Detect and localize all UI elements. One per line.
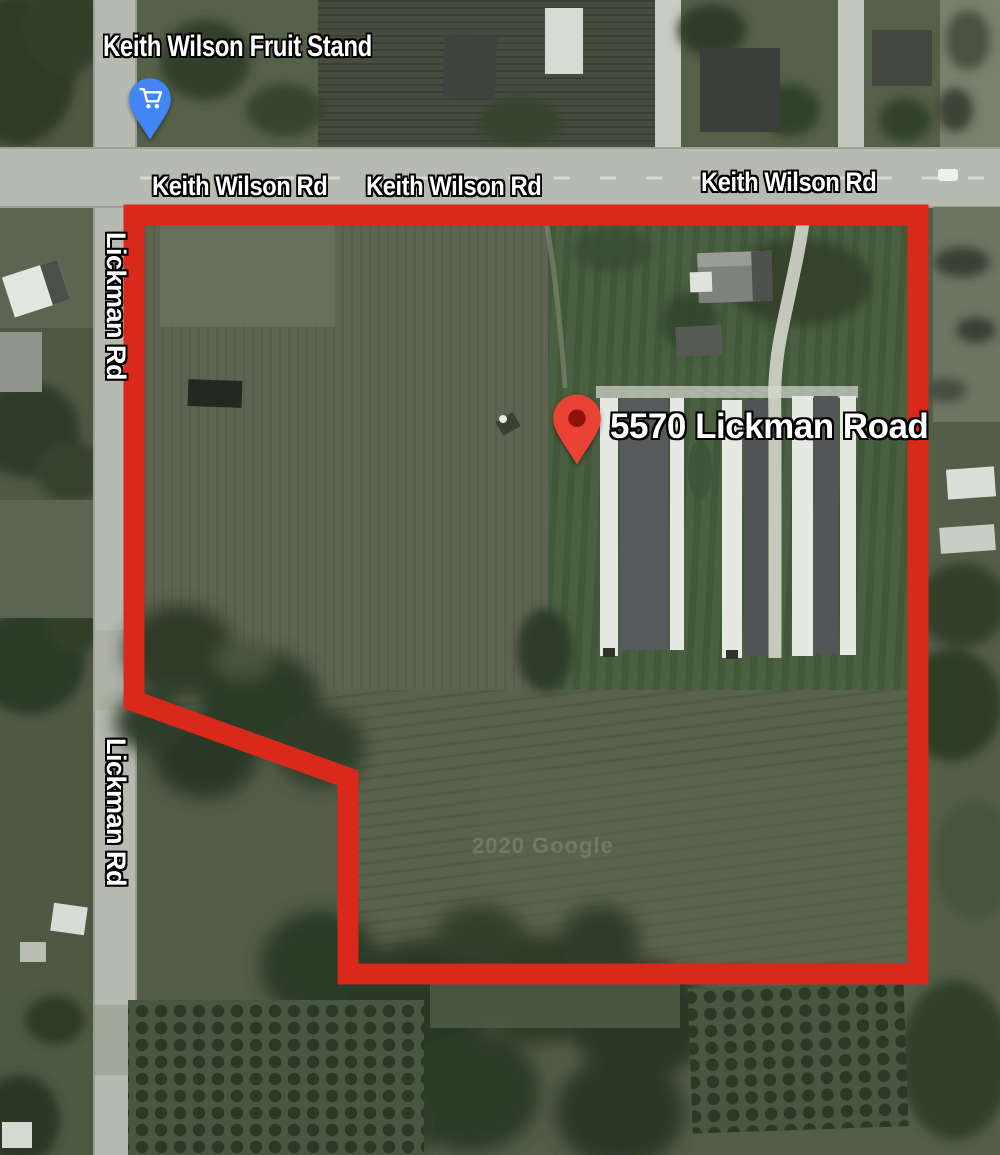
shopping-cart-pin-icon[interactable] — [128, 74, 172, 144]
road-label-keith-wilson-rd-2: Keith Wilson Rd — [366, 171, 541, 202]
property-address-label[interactable]: 5570 Lickman Road — [610, 407, 928, 447]
red-map-pin-icon[interactable] — [552, 381, 602, 478]
road-label-keith-wilson-rd-1: Keith Wilson Rd — [152, 171, 327, 202]
road-label-keith-wilson-rd-3: Keith Wilson Rd — [701, 167, 876, 198]
imagery-watermark: 2020 Google — [472, 833, 614, 859]
road-label-lickman-rd-2: Lickman Rd — [100, 738, 131, 886]
poi-label-fruit-stand[interactable]: Keith Wilson Fruit Stand — [103, 30, 372, 64]
road-label-lickman-rd-1: Lickman Rd — [100, 232, 131, 380]
satellite-map[interactable]: Keith Wilson Fruit Stand Keith Wilson Rd… — [0, 0, 1000, 1155]
